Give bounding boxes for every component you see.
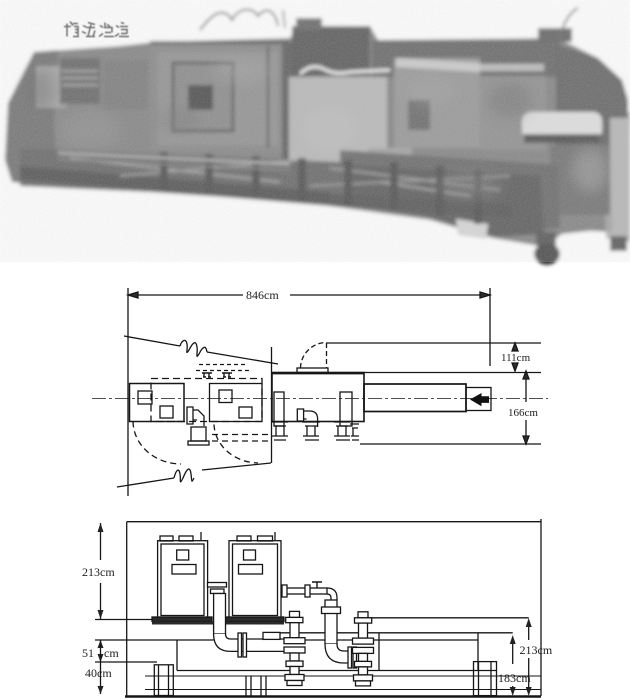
svg-text:111cm: 111cm [501,352,531,364]
svg-text:183cm: 183cm [498,671,531,685]
svg-text:213cm: 213cm [82,565,115,579]
svg-text:166cm: 166cm [508,407,538,419]
svg-text:213cm: 213cm [520,643,553,657]
svg-text:cm: cm [104,646,119,660]
svg-text:40cm: 40cm [85,666,112,680]
svg-text:51: 51 [82,646,94,660]
svg-text:846cm: 846cm [246,288,279,302]
